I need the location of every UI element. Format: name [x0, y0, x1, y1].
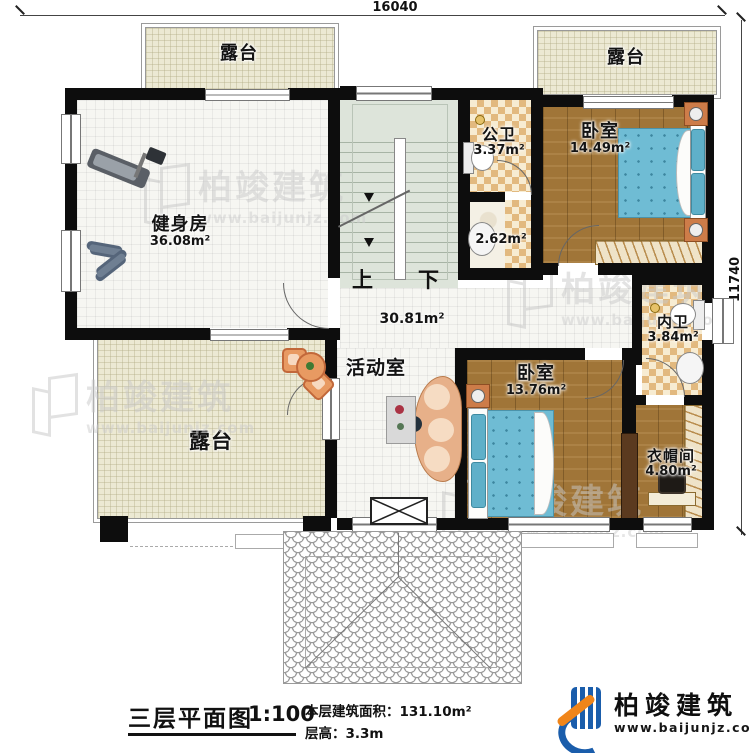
- sofa-cushion: [428, 418, 454, 442]
- terrace-top-left-label: 露台: [145, 44, 333, 64]
- activity-terrace-door: [210, 329, 289, 341]
- flower-decoration: [395, 405, 404, 414]
- pillow: [471, 414, 486, 460]
- wall-segment: [65, 88, 77, 116]
- gym-window: [61, 230, 81, 292]
- floor-plan: 16040 11740 露台 露台 露台 柏竣建筑 www.baijunjz.c…: [0, 0, 750, 753]
- dumbbell: [96, 252, 127, 278]
- wall-segment: [340, 86, 356, 100]
- top-dimension-label: 16040: [355, 0, 435, 15]
- window-sill: [235, 534, 289, 549]
- public-bath-label: 公卫 3.37m²: [462, 126, 536, 158]
- roof-ridge-line: [398, 533, 399, 577]
- wall-segment: [684, 395, 702, 405]
- cloakroom-window: [643, 517, 692, 532]
- title-underline: [128, 733, 296, 736]
- wall-segment: [543, 95, 583, 107]
- stairs-down-label: 下: [418, 264, 439, 294]
- brand-logo: 柏竣建筑 www.baijunjz.com: [556, 686, 750, 746]
- right-dimension-label: 11740: [728, 222, 743, 302]
- pillow: [691, 173, 705, 215]
- window-sill: [520, 533, 614, 548]
- wall-segment: [435, 518, 510, 530]
- wall-segment: [430, 88, 543, 100]
- sink-icon: [676, 352, 704, 384]
- wall-segment: [690, 518, 714, 530]
- wall-segment: [598, 263, 702, 275]
- treadmill-console: [145, 147, 167, 166]
- skylight-box: [370, 497, 428, 525]
- floor-height-label: 层高：: [305, 726, 346, 742]
- wall-segment: [608, 518, 643, 530]
- stair-arrow: [364, 193, 374, 202]
- wall-segment: [458, 88, 470, 280]
- wall-segment: [455, 348, 585, 360]
- gym-label: 健身房 36.08m²: [132, 215, 228, 250]
- stairs-up-label: 上: [352, 264, 373, 294]
- wall-segment: [287, 328, 340, 340]
- brand-website: www.baijunjz.com: [614, 720, 750, 735]
- light-fixture-icon: [650, 303, 660, 313]
- sofa-cushion: [424, 446, 450, 472]
- terrace-bottom-label: 露台: [97, 430, 325, 454]
- bedroom-terrace-door: [583, 96, 674, 109]
- brand-name: 柏竣建筑: [614, 692, 750, 720]
- stair-arrow: [364, 238, 374, 247]
- wall-segment: [632, 275, 712, 285]
- bedroom-top-label: 卧室 14.49m²: [548, 122, 652, 157]
- terrace-corner-post: [100, 516, 128, 542]
- shower-label: 2.62m²: [466, 233, 536, 248]
- watermark-logo-icon: [28, 373, 78, 435]
- building-area-row: 本层建筑面积：131.10m²: [305, 700, 472, 720]
- gym-terrace-door: [205, 89, 290, 101]
- floor-height-row: 层高：3.3m: [305, 722, 383, 742]
- light-fixture-icon: [475, 115, 485, 125]
- cloakroom-label: 衣帽间 4.80m²: [634, 448, 708, 479]
- gym-window: [61, 114, 81, 164]
- activity-area-label: 30.81m²: [372, 312, 452, 328]
- brand-text: 柏竣建筑 www.baijunjz.com: [614, 686, 750, 735]
- wall-segment: [65, 328, 210, 340]
- inner-bath-label: 内卫 3.84m²: [642, 314, 704, 345]
- nightstand: [684, 102, 708, 126]
- dimension-tick: [15, 5, 25, 15]
- sofa-cushion: [424, 384, 450, 410]
- wall-segment: [622, 348, 636, 433]
- flower-decoration: [397, 423, 404, 430]
- floor-height-value: 3.3m: [346, 726, 384, 742]
- bedroom-bottom-window: [508, 517, 610, 532]
- activity-label: 活动室: [330, 358, 422, 379]
- nightstand: [684, 218, 708, 242]
- stair-window: [356, 86, 432, 101]
- dimension-tick: [717, 5, 727, 15]
- roof-outline: [305, 556, 497, 668]
- brand-logo-icon: [556, 686, 610, 746]
- side-table: [386, 396, 416, 444]
- wall-segment: [65, 162, 77, 232]
- plan-title: 三层平面图: [128, 699, 253, 733]
- top-dimension-line: [20, 15, 725, 16]
- stair-stringer: [394, 138, 406, 280]
- wall-segment: [325, 438, 337, 518]
- desk: [648, 492, 696, 506]
- inner-bath-bay-window: [712, 298, 734, 344]
- terrace-table: [296, 352, 326, 382]
- bedroom-top-closet: [595, 240, 704, 265]
- wall-segment: [65, 88, 205, 100]
- wall-segment: [543, 263, 558, 275]
- wall-segment: [328, 88, 340, 278]
- window-sill: [636, 533, 698, 548]
- plant-decoration: [306, 362, 314, 370]
- pillow: [471, 462, 486, 508]
- pillow: [691, 129, 705, 171]
- building-area-label: 本层建筑面积：: [305, 704, 400, 720]
- bedroom-bottom-label: 卧室 13.76m²: [486, 364, 586, 399]
- building-area-value: 131.10m²: [400, 704, 472, 720]
- terrace-top-right-label: 露台: [537, 48, 715, 68]
